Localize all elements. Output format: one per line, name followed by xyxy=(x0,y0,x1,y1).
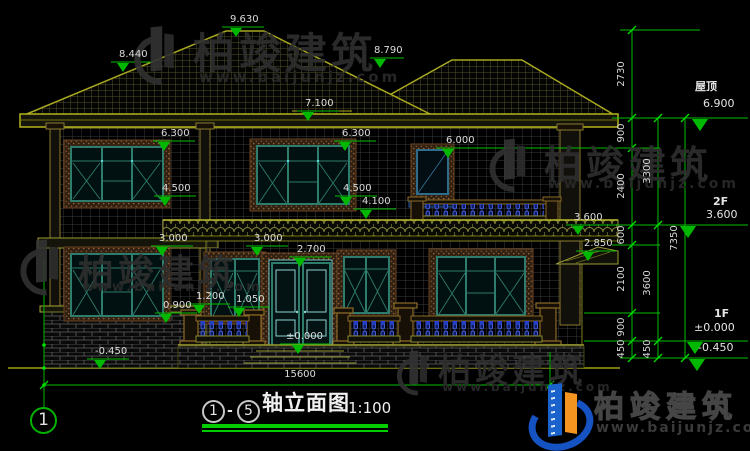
balcony-railing xyxy=(408,197,561,221)
right-1f-window xyxy=(429,249,533,321)
watermark-logo-icon xyxy=(397,351,434,391)
overall-width-dim: 15600 xyxy=(272,370,328,380)
level-label: 8.440 xyxy=(119,50,148,60)
storey-label-2f: 2F xyxy=(713,196,728,207)
storey-level-ground: -0.450 xyxy=(698,342,733,353)
level-label: ±0.000 xyxy=(286,332,323,342)
center-2f-window xyxy=(250,139,356,211)
brand-logo-site: www.baijunjz.com xyxy=(596,420,750,436)
watermark-logo-icon xyxy=(20,240,66,290)
brand-logo: 柏竣建筑 www.baijunjz.com xyxy=(506,382,750,450)
watermark-top: 柏竣建筑 www.baijunjz.com xyxy=(135,20,465,90)
level-label: 8.790 xyxy=(374,46,403,56)
brand-logo-icon xyxy=(528,384,594,446)
chain-dim: 450 xyxy=(616,332,628,366)
title-underline-2 xyxy=(202,430,388,432)
watermark-site: www.baijunjz.com xyxy=(82,280,263,295)
chain-dim-total: 7350 xyxy=(669,221,681,255)
chain-dim: 2100 xyxy=(616,262,628,296)
storey-label-1f: 1F xyxy=(714,308,729,319)
title-scale: 1:100 xyxy=(348,403,391,413)
level-label: 6.300 xyxy=(161,129,190,139)
storey-label-roof: 屋顶 xyxy=(695,81,717,92)
axis-bubble-1: 1 xyxy=(30,407,57,434)
level-label: 4.500 xyxy=(162,184,191,194)
watermark-site: www.baijunjz.com xyxy=(199,68,400,86)
watermark-logo-icon xyxy=(489,139,533,187)
level-label: 2.850 xyxy=(584,239,613,249)
level-label: 0.900 xyxy=(163,301,192,311)
level-label: 9.630 xyxy=(230,15,259,25)
chain-dim: 450 xyxy=(642,332,654,366)
storey-level-2f: 3.600 xyxy=(706,209,738,220)
storey-level-1f: ±0.000 xyxy=(694,322,735,333)
chain-dim: 900 xyxy=(616,116,628,150)
level-label: 6.300 xyxy=(342,129,371,139)
storey-level-roof: 6.900 xyxy=(703,98,735,109)
level-label: 3.000 xyxy=(159,234,188,244)
wing-2f-window xyxy=(64,140,170,208)
level-label: 1.200 xyxy=(196,292,225,302)
chain-dim: 2730 xyxy=(616,57,628,91)
chain-dim: 3600 xyxy=(642,266,654,300)
title-axis-end: 5 xyxy=(237,400,260,423)
chain-dim: 2400 xyxy=(616,169,628,203)
level-label: 6.000 xyxy=(446,136,475,146)
title-axis-start: 1 xyxy=(202,400,225,423)
level-label: 1.050 xyxy=(236,295,265,305)
cad-elevation-drawing: 柏竣建筑 www.baijunjz.com 柏竣建筑 www.baijunjz.… xyxy=(0,0,750,451)
level-label: 3.600 xyxy=(574,213,603,223)
title-axis-sep: - xyxy=(227,406,233,416)
level-label: -0.450 xyxy=(95,347,127,357)
level-label: 4.100 xyxy=(362,197,391,207)
chain-dim: 3300 xyxy=(642,154,654,188)
level-label: 4.500 xyxy=(343,184,372,194)
level-label: 7.100 xyxy=(305,99,334,109)
title-text: 轴立面图 xyxy=(262,398,350,408)
level-label: 2.700 xyxy=(297,245,326,255)
level-label: 3.000 xyxy=(254,234,283,244)
title-underline xyxy=(202,424,388,428)
chain-dim: 600 xyxy=(616,218,628,252)
